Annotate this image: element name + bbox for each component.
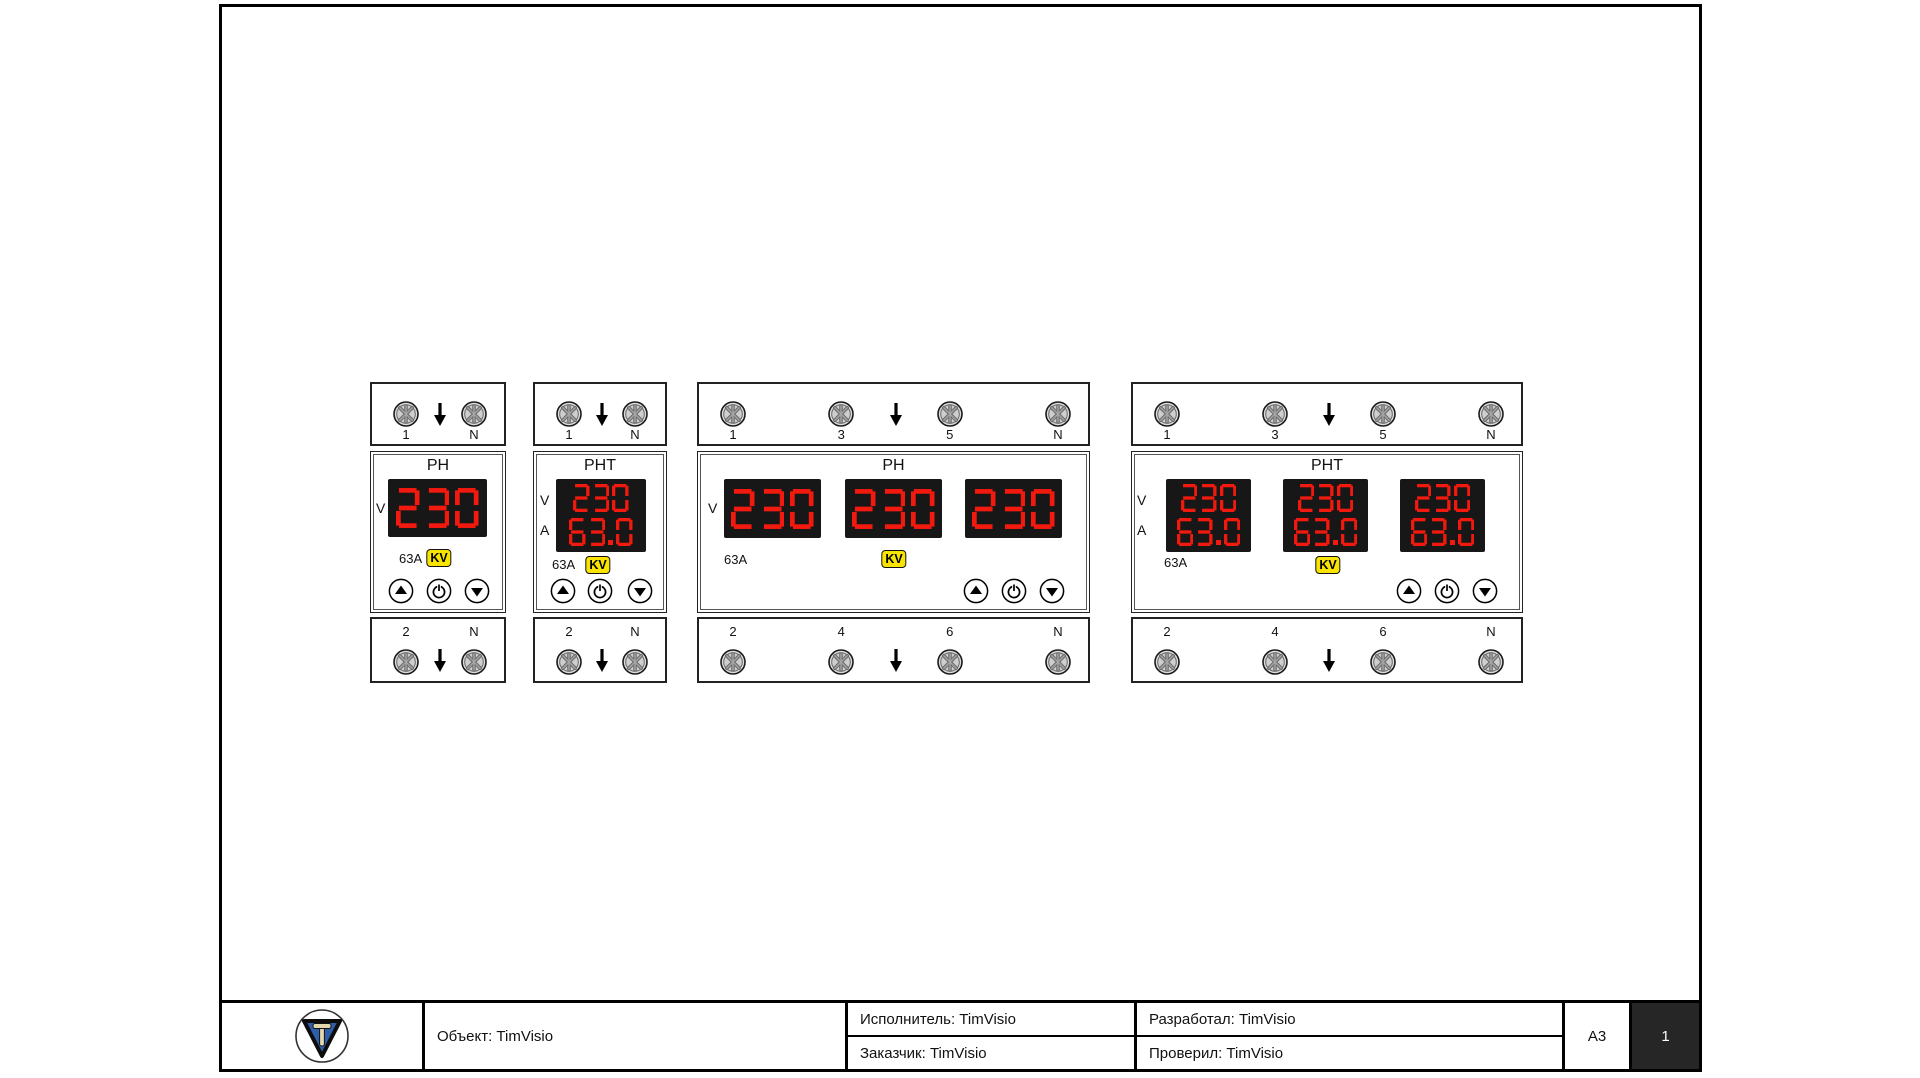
- terminal-label: N: [1478, 625, 1504, 638]
- up-button-icon: [1396, 578, 1422, 604]
- flow-direction-arrow-icon: [1321, 647, 1337, 673]
- device-type-label: РН: [371, 457, 505, 475]
- terminal-label: 4: [1262, 625, 1288, 638]
- terminal-screw-icon: [1370, 401, 1396, 427]
- terminal-screw: [461, 649, 487, 680]
- up-button-icon: [388, 578, 414, 604]
- seven-seg-display: [1400, 479, 1485, 552]
- power-button-icon: [1434, 578, 1460, 604]
- seven-seg-digit: [1458, 518, 1475, 546]
- terminal-screw-icon: [622, 401, 648, 427]
- terminal-label: N: [1045, 428, 1071, 441]
- terminal-label: 1: [393, 428, 419, 441]
- terminal-screw-icon: [828, 401, 854, 427]
- terminal-label: N: [1478, 428, 1504, 441]
- terminal-screw: [828, 649, 854, 680]
- terminal-screw: [1045, 649, 1071, 680]
- seven-seg-digit: [569, 518, 586, 546]
- flow-direction-arrow-icon: [594, 647, 610, 673]
- current-rating-label: 63A: [399, 552, 422, 566]
- display-row: [388, 488, 487, 528]
- terminal-screw-icon: [1262, 649, 1288, 675]
- terminal-screw-icon: [1154, 649, 1180, 675]
- display-row: [1283, 518, 1368, 546]
- seven-seg-digit: [852, 489, 876, 529]
- decimal-point: [608, 540, 613, 545]
- arrow: [1321, 401, 1337, 432]
- arrow: [432, 401, 448, 432]
- power-button-icon: [426, 578, 452, 604]
- display-row: [1283, 484, 1368, 512]
- seven-seg-digit: [455, 488, 479, 528]
- terminal-screw-icon: [622, 649, 648, 675]
- display-row: [556, 484, 646, 512]
- bottom-terminal-box: 2 N: [370, 617, 506, 683]
- terminal-screw-icon: [461, 401, 487, 427]
- terminal-label: 5: [1370, 428, 1396, 441]
- seven-seg-digit: [1337, 484, 1354, 512]
- terminal-screw-icon: [393, 649, 419, 675]
- seven-seg-digit: [790, 489, 814, 529]
- decimal-point: [1216, 540, 1221, 545]
- title-block: Объект: TimVisio Исполнитель: TimVisio З…: [222, 1000, 1699, 1069]
- decimal-point: [1333, 540, 1338, 545]
- up-button[interactable]: [550, 578, 576, 604]
- display-row: [556, 518, 646, 546]
- arrow: [888, 401, 904, 432]
- top-terminal-box: 1 3 5 N: [1131, 382, 1523, 446]
- seven-seg-digit: [1341, 518, 1358, 546]
- seven-seg-display: [724, 479, 821, 538]
- bottom-terminal-box: 2 N: [533, 617, 667, 683]
- current-rating-label: 63A: [552, 558, 575, 572]
- down-button[interactable]: [627, 578, 653, 604]
- terminal-screw: [393, 649, 419, 680]
- titleblock-customer: Заказчик: TimVisio: [848, 1037, 1134, 1069]
- seven-seg-digit: [1411, 518, 1428, 546]
- bottom-terminal-box: 2 4 6 N: [1131, 617, 1523, 683]
- top-terminal-box: 1 3 5 N: [697, 382, 1090, 446]
- display-row: [965, 489, 1062, 529]
- terminal-screw-icon: [556, 649, 582, 675]
- terminal-screw: [556, 649, 582, 680]
- seven-seg-digit: [1430, 518, 1447, 546]
- terminal-screw-icon: [1045, 649, 1071, 675]
- terminal-label: 2: [556, 625, 582, 638]
- seven-seg-digit: [972, 489, 996, 529]
- terminal-screw-icon: [461, 649, 487, 675]
- terminal-label: N: [622, 625, 648, 638]
- seven-seg-digit: [1196, 518, 1213, 546]
- flow-direction-arrow-icon: [888, 647, 904, 673]
- up-button[interactable]: [963, 578, 989, 604]
- device-type-label: РНТ: [534, 457, 666, 475]
- seven-seg-digit: [426, 488, 450, 528]
- device-type-label: РН: [698, 457, 1089, 475]
- seven-seg-digit: [1002, 489, 1026, 529]
- display-row: [1400, 518, 1485, 546]
- terminal-label: 6: [1370, 625, 1396, 638]
- terminal-screw-icon: [1262, 401, 1288, 427]
- seven-seg-digit: [1031, 489, 1055, 529]
- seven-seg-digit: [1298, 484, 1315, 512]
- seven-seg-digit: [1415, 484, 1432, 512]
- arrow: [888, 647, 904, 678]
- down-button-icon: [1039, 578, 1065, 604]
- terminal-label: 2: [393, 625, 419, 638]
- terminal-screw: [937, 649, 963, 680]
- terminal-screw-icon: [720, 649, 746, 675]
- current-rating-label: 63A: [1164, 556, 1187, 570]
- terminal-screw: [720, 649, 746, 680]
- flow-direction-arrow-icon: [594, 401, 610, 427]
- arrow: [594, 401, 610, 432]
- down-button-icon: [627, 578, 653, 604]
- unit-label-v: V: [1137, 492, 1146, 508]
- power-button[interactable]: [1434, 578, 1460, 604]
- power-button-icon: [1001, 578, 1027, 604]
- seven-seg-digit: [882, 489, 906, 529]
- seven-seg-digit: [1317, 484, 1334, 512]
- seven-seg-digit: [612, 484, 629, 512]
- terminal-label: 2: [720, 625, 746, 638]
- terminal-label: 3: [828, 428, 854, 441]
- power-button[interactable]: [1001, 578, 1027, 604]
- seven-seg-display: [1283, 479, 1368, 552]
- seven-seg-digit: [1313, 518, 1330, 546]
- terminal-label: N: [461, 428, 487, 441]
- power-button[interactable]: [426, 578, 452, 604]
- titleblock-col-left: Исполнитель: TimVisio Заказчик: TimVisio: [848, 1003, 1137, 1069]
- down-button-icon: [464, 578, 490, 604]
- terminal-label: 1: [556, 428, 582, 441]
- terminal-label: 6: [937, 625, 963, 638]
- kv-badge: KV: [881, 550, 906, 568]
- terminal-label: 2: [1154, 625, 1180, 638]
- terminal-screw-icon: [828, 649, 854, 675]
- seven-seg-digit: [1177, 518, 1194, 546]
- terminal-label: N: [1045, 625, 1071, 638]
- seven-seg-digit: [1454, 484, 1471, 512]
- device-body: РНТVA63AKV: [533, 451, 667, 613]
- terminal-label: 1: [1154, 428, 1180, 441]
- terminal-screw-icon: [1478, 401, 1504, 427]
- seven-seg-digit: [731, 489, 755, 529]
- power-button-icon: [587, 578, 613, 604]
- down-button[interactable]: [464, 578, 490, 604]
- seven-seg-display: [1166, 479, 1251, 552]
- device-type-label: РНТ: [1132, 457, 1522, 475]
- logo-cell: [222, 1003, 425, 1069]
- titleblock-col-right: Разработал: TimVisio Проверил: TimVisio: [1137, 1003, 1565, 1069]
- terminal-screw: [622, 649, 648, 680]
- current-rating-label: 63A: [724, 553, 747, 567]
- terminal-screw-icon: [1478, 649, 1504, 675]
- terminal-screw-icon: [1370, 649, 1396, 675]
- down-button[interactable]: [1472, 578, 1498, 604]
- display-row: [845, 489, 942, 529]
- unit-label-v: V: [376, 500, 385, 516]
- unit-label-v: V: [708, 500, 717, 516]
- display-row: [1166, 484, 1251, 512]
- terminal-screw-icon: [720, 401, 746, 427]
- arrow: [594, 647, 610, 678]
- seven-seg-display: [556, 479, 646, 552]
- terminal-screw-icon: [1154, 401, 1180, 427]
- seven-seg-digit: [396, 488, 420, 528]
- seven-seg-digit: [1200, 484, 1217, 512]
- decimal-point: [1450, 540, 1455, 545]
- seven-seg-digit: [573, 484, 590, 512]
- terminal-screw-icon: [556, 401, 582, 427]
- device-body: РНV63AKV: [370, 451, 506, 613]
- terminal-label: 3: [1262, 428, 1288, 441]
- terminal-label: 4: [828, 625, 854, 638]
- seven-seg-digit: [616, 518, 633, 546]
- top-terminal-box: 1 N: [370, 382, 506, 446]
- unit-label-a: A: [1137, 522, 1146, 538]
- titleblock-executor: Исполнитель: TimVisio: [848, 1003, 1134, 1037]
- kv-badge: KV: [1315, 556, 1340, 574]
- seven-seg-digit: [593, 484, 610, 512]
- seven-seg-digit: [1224, 518, 1241, 546]
- seven-seg-digit: [1294, 518, 1311, 546]
- terminal-screw: [1154, 649, 1180, 680]
- seven-seg-digit: [1181, 484, 1198, 512]
- seven-seg-display: [965, 479, 1062, 538]
- up-button-icon: [963, 578, 989, 604]
- terminal-screw-icon: [1045, 401, 1071, 427]
- device-body: РНV63AKV: [697, 451, 1090, 613]
- terminal-screw-icon: [937, 649, 963, 675]
- up-button[interactable]: [1396, 578, 1422, 604]
- seven-seg-digit: [1220, 484, 1237, 512]
- down-button[interactable]: [1039, 578, 1065, 604]
- terminal-screw-icon: [937, 401, 963, 427]
- sheet-format: A3: [1565, 1003, 1632, 1069]
- sheet-number: 1: [1632, 1003, 1699, 1069]
- terminal-label: N: [622, 428, 648, 441]
- unit-label-a: A: [540, 522, 549, 538]
- arrow: [432, 647, 448, 678]
- up-button[interactable]: [388, 578, 414, 604]
- kv-badge: KV: [426, 549, 451, 567]
- terminal-screw: [1262, 649, 1288, 680]
- flow-direction-arrow-icon: [1321, 401, 1337, 427]
- titleblock-object: Объект: TimVisio: [425, 1003, 848, 1069]
- display-row: [724, 489, 821, 529]
- arrow: [1321, 647, 1337, 678]
- company-logo-icon: [294, 1008, 350, 1064]
- flow-direction-arrow-icon: [888, 401, 904, 427]
- seven-seg-digit: [589, 518, 606, 546]
- terminal-screw-icon: [393, 401, 419, 427]
- unit-label-v: V: [540, 492, 549, 508]
- seven-seg-display: [388, 479, 487, 537]
- display-row: [1400, 484, 1485, 512]
- power-button[interactable]: [587, 578, 613, 604]
- display-row: [1166, 518, 1251, 546]
- flow-direction-arrow-icon: [432, 401, 448, 427]
- up-button-icon: [550, 578, 576, 604]
- terminal-screw: [1370, 649, 1396, 680]
- flow-direction-arrow-icon: [432, 647, 448, 673]
- down-button-icon: [1472, 578, 1498, 604]
- seven-seg-display: [845, 479, 942, 538]
- seven-seg-digit: [761, 489, 785, 529]
- kv-badge: KV: [585, 556, 610, 574]
- seven-seg-digit: [1434, 484, 1451, 512]
- terminal-screw: [1478, 649, 1504, 680]
- titleblock-checker: Проверил: TimVisio: [1137, 1037, 1562, 1069]
- terminal-label: N: [461, 625, 487, 638]
- terminal-label: 1: [720, 428, 746, 441]
- top-terminal-box: 1 N: [533, 382, 667, 446]
- terminal-label: 5: [937, 428, 963, 441]
- drawing-sheet: 1 N РНV63AKV 2: [0, 0, 1920, 1078]
- seven-seg-digit: [911, 489, 935, 529]
- titleblock-developer: Разработал: TimVisio: [1137, 1003, 1562, 1037]
- bottom-terminal-box: 2 4 6 N: [697, 617, 1090, 683]
- device-body: РНТVA63AKV: [1131, 451, 1523, 613]
